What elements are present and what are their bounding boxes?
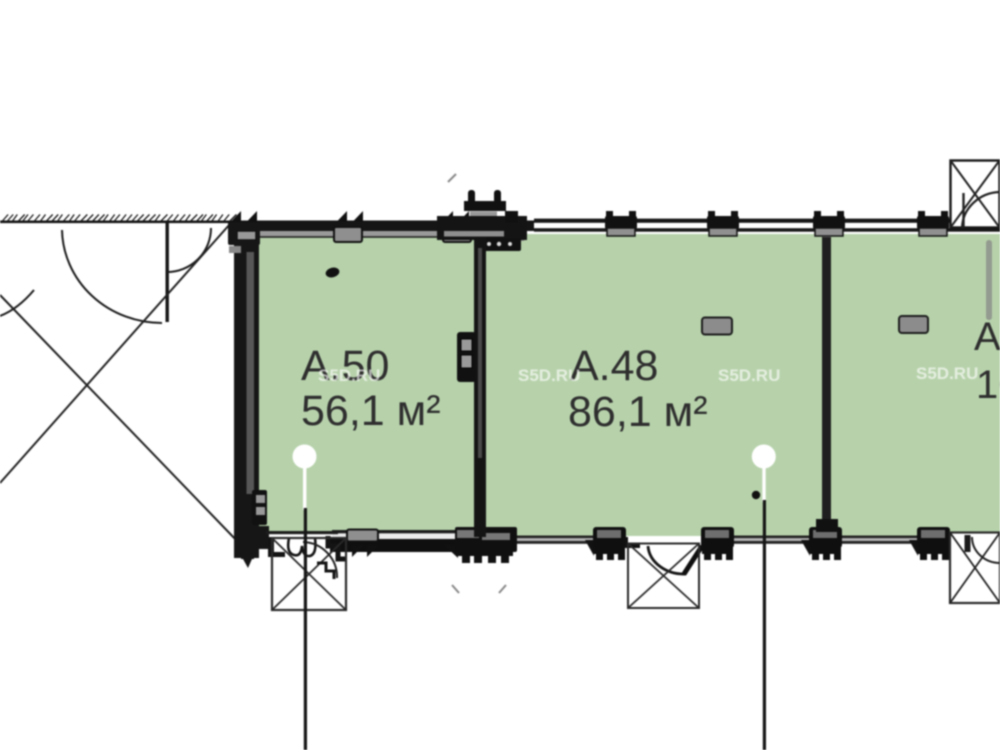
svg-text:S5D.RU: S5D.RU (518, 366, 580, 385)
svg-text:S5D.RU: S5D.RU (318, 366, 380, 385)
svg-text:S5D.RU: S5D.RU (916, 364, 978, 383)
svg-text:56,1 м²: 56,1 м² (301, 387, 441, 435)
svg-text:86,1 м²: 86,1 м² (568, 388, 708, 436)
svg-text:А.4: А.4 (974, 315, 1000, 359)
svg-text:S5D.RU: S5D.RU (718, 366, 780, 385)
svg-text:А.48: А.48 (570, 342, 658, 390)
svg-text:106: 106 (976, 363, 1000, 407)
